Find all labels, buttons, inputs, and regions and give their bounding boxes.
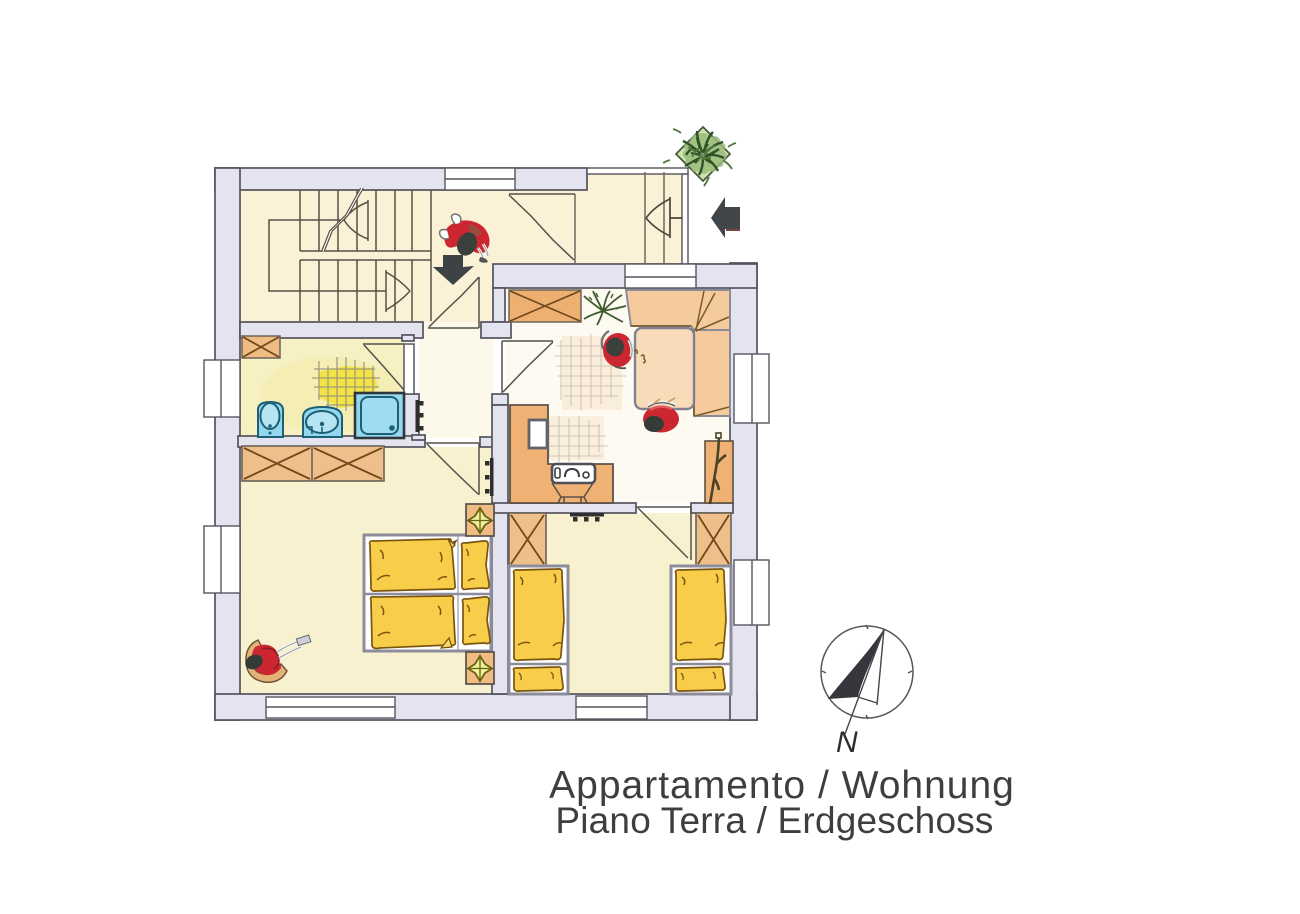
svg-text:N: N [836, 726, 858, 759]
